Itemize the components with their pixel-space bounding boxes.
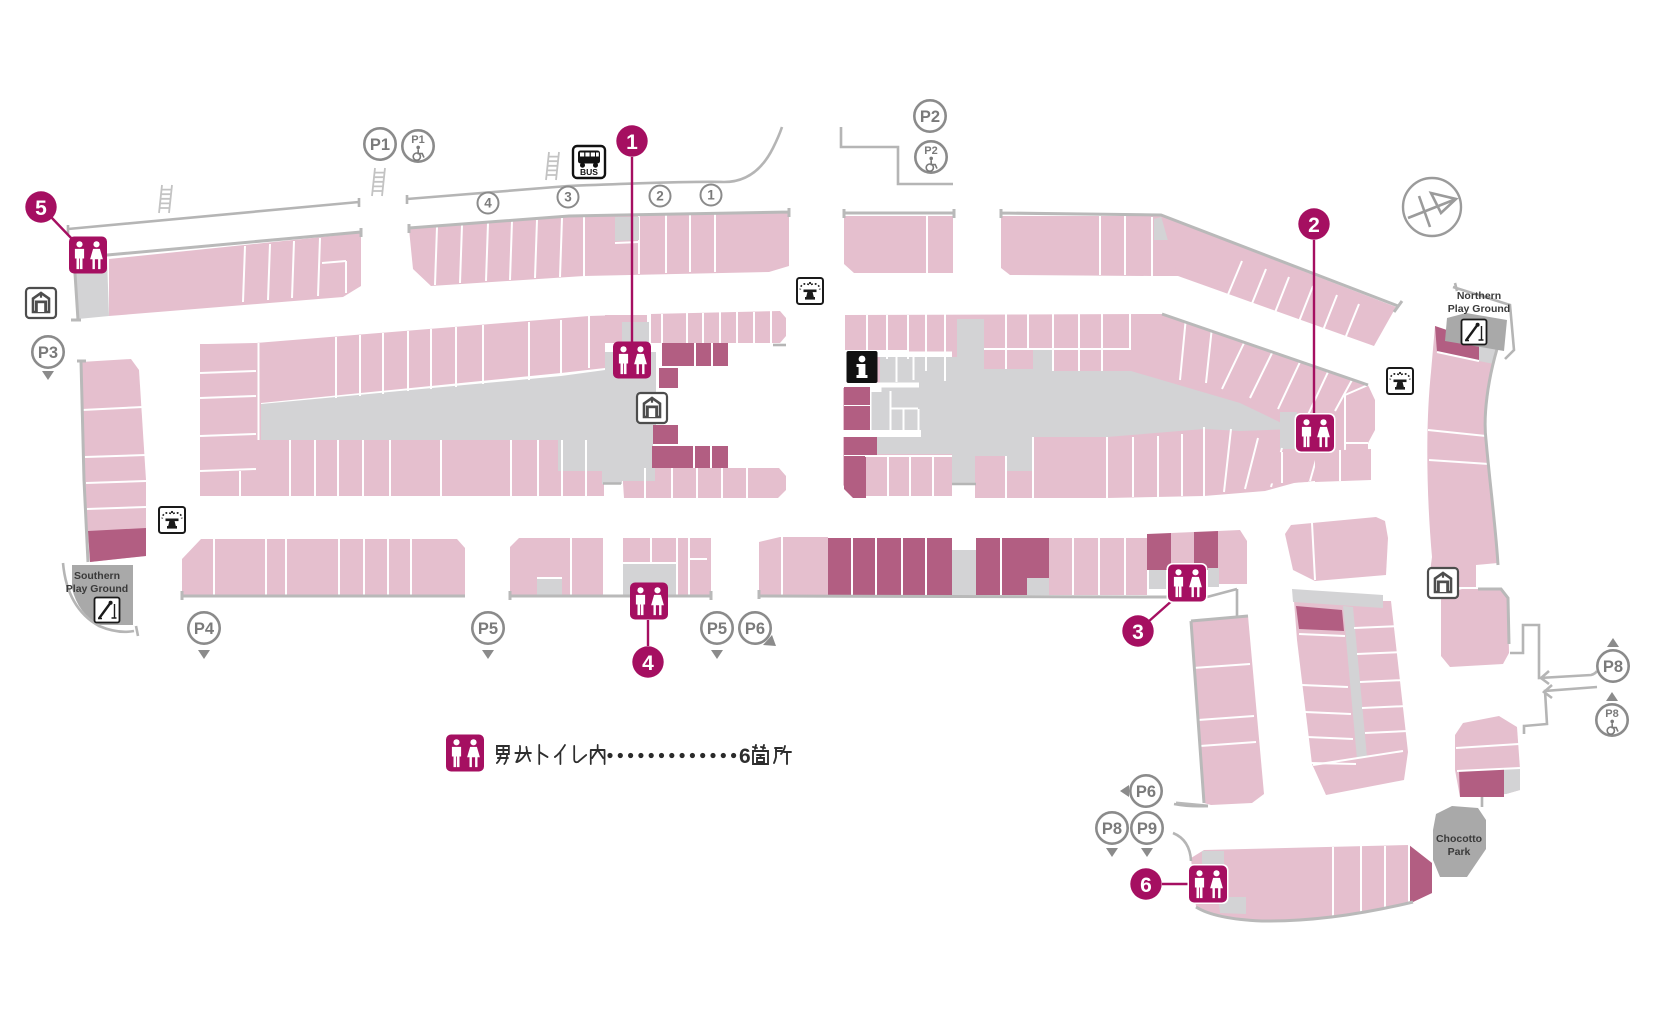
svg-text:P2: P2 xyxy=(920,108,940,126)
svg-text:2: 2 xyxy=(656,189,664,204)
svg-text:Northern: Northern xyxy=(1457,290,1501,302)
svg-text:P3: P3 xyxy=(38,344,58,362)
svg-text:2: 2 xyxy=(1308,214,1320,237)
svg-text:P8: P8 xyxy=(1102,820,1122,838)
svg-text:4: 4 xyxy=(642,652,654,675)
svg-text:Park: Park xyxy=(1448,846,1471,858)
svg-text:Chocotto: Chocotto xyxy=(1436,833,1482,845)
svg-text:P1: P1 xyxy=(370,136,390,154)
svg-text:P8: P8 xyxy=(1605,708,1618,720)
svg-text:4: 4 xyxy=(484,196,492,211)
svg-text:P4: P4 xyxy=(194,620,215,638)
svg-text:5: 5 xyxy=(35,197,47,220)
svg-text:6: 6 xyxy=(739,745,751,768)
svg-text:Play Ground: Play Ground xyxy=(66,583,128,595)
svg-text:3: 3 xyxy=(1132,621,1144,644)
svg-text:P5: P5 xyxy=(707,620,727,638)
svg-text:Play Ground: Play Ground xyxy=(1448,303,1510,315)
svg-text:6: 6 xyxy=(1140,874,1152,897)
svg-text:P6: P6 xyxy=(745,620,765,638)
svg-text:3: 3 xyxy=(564,190,572,205)
svg-text:P2: P2 xyxy=(924,145,937,157)
svg-text:P9: P9 xyxy=(1137,820,1157,838)
svg-text:P1: P1 xyxy=(411,134,424,146)
svg-text:P6: P6 xyxy=(1136,783,1156,801)
svg-text:Southern: Southern xyxy=(74,570,120,582)
svg-text:P8: P8 xyxy=(1603,658,1623,676)
svg-text:1: 1 xyxy=(626,131,638,154)
svg-text:1: 1 xyxy=(707,188,715,203)
svg-text:P5: P5 xyxy=(478,620,498,638)
